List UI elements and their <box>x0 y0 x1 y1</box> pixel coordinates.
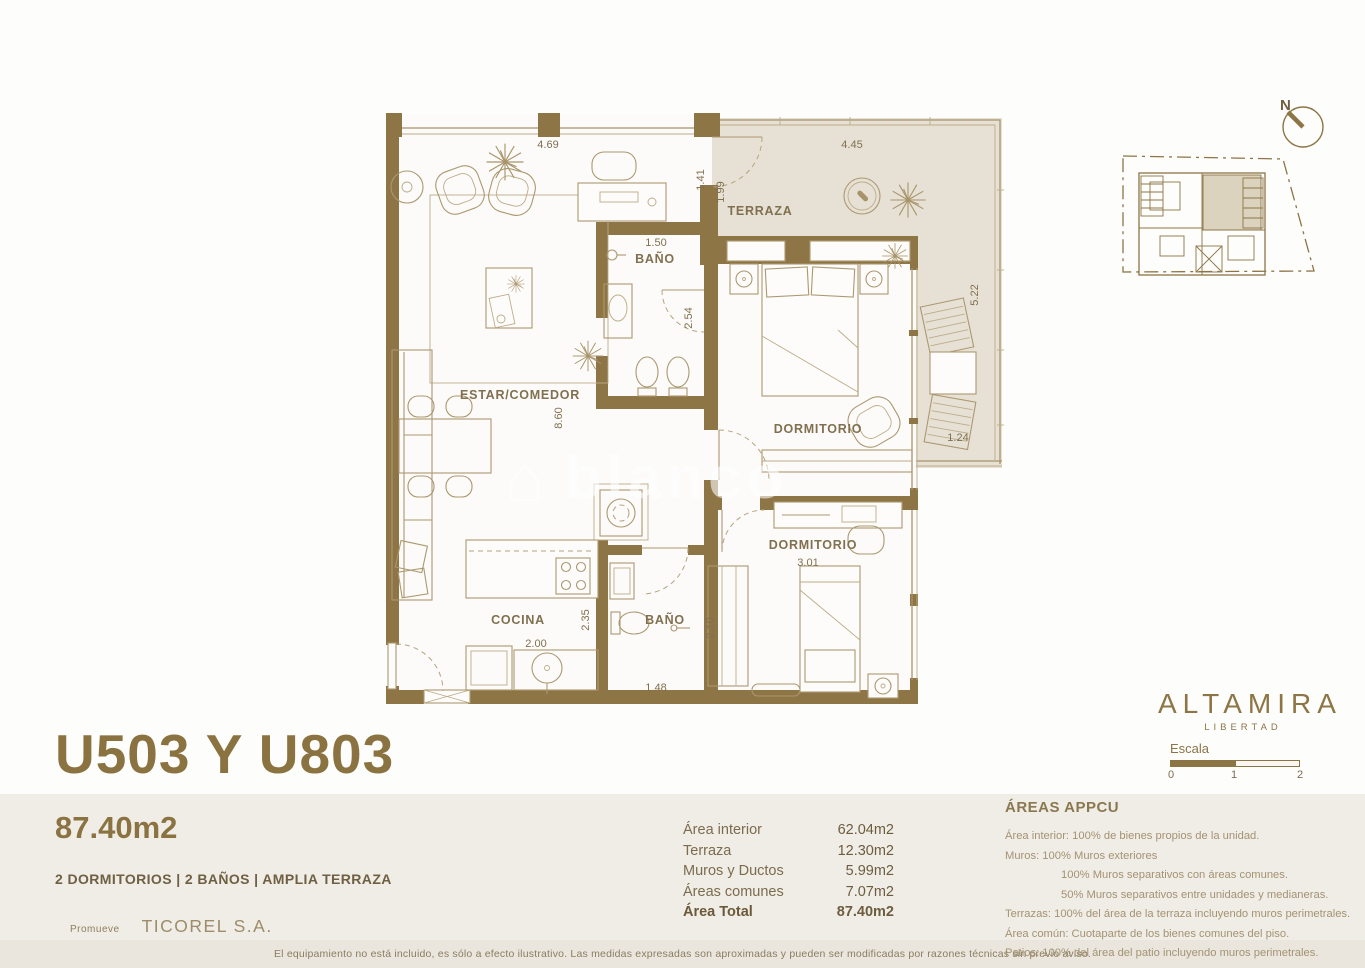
room-label-bedroom2: DORMITORIO <box>769 538 858 552</box>
scale-tick: 2 <box>1297 769 1303 781</box>
brand-tagline: LIBERTAD <box>1158 722 1302 733</box>
unit-code-title: U503 Y U803 <box>55 722 394 786</box>
dim-label: 1.48 <box>645 682 666 694</box>
dim-label: 2.54 <box>683 307 695 328</box>
appcu-title: ÁREAS APPCU <box>1005 799 1355 816</box>
terrace-side-table <box>930 352 976 394</box>
room-label-bath2: BAÑO <box>645 612 685 627</box>
row-label: Área interior <box>683 822 762 843</box>
room-label-terrace: TERRAZA <box>728 204 793 218</box>
row-value: 5.99m2 <box>846 863 894 884</box>
promoter-name: TICOREL S.A. <box>142 916 273 937</box>
dim-label: 3.01 <box>797 557 818 569</box>
scale-tick: 0 <box>1168 769 1174 781</box>
dim-label: 1.50 <box>645 237 666 249</box>
dim-label: 4.45 <box>841 139 862 151</box>
brand-name: ALTAMIRA <box>1158 688 1302 720</box>
promoter: Promueve TICOREL S.A. <box>70 916 273 937</box>
dim-label: 5.22 <box>969 284 981 305</box>
row-value: 87.40m2 <box>837 904 894 925</box>
dim-label: 4.69 <box>537 139 558 151</box>
row-label: Terraza <box>683 843 731 864</box>
site-plan <box>1123 156 1314 275</box>
scale-bar: Escala 0 1 2 <box>1170 741 1302 782</box>
compass: N <box>1280 97 1323 147</box>
scale-bar-graphic <box>1170 760 1301 767</box>
appcu-line: Terrazas: 100% del área de la terraza in… <box>1005 905 1355 925</box>
dim-label: 8.60 <box>553 407 565 428</box>
table-row: Áreas comunes 7.07m2 <box>683 884 894 905</box>
dim-label: 1.99 <box>715 181 727 202</box>
scale-label: Escala <box>1170 741 1302 756</box>
dim-label: 2.35 <box>580 609 592 630</box>
promoter-label: Promueve <box>70 924 120 935</box>
unit-total-area: 87.40m2 <box>55 810 177 846</box>
dim-label: 1.41 <box>695 169 707 190</box>
appcu-line: 50% Muros separativos entre unidades y m… <box>1005 886 1355 906</box>
floor-plan-sheet: ESTAR/COMEDOR BAÑO TERRAZA DORMITORIO DO… <box>0 0 1365 968</box>
appcu-line: 100% Muros separativos con áreas comunes… <box>1005 866 1355 886</box>
kitchen-island <box>466 540 598 598</box>
scale-segment-empty <box>1235 760 1300 767</box>
nightstand <box>730 264 758 294</box>
appcu-line: Patios: 100% del área del patio incluyen… <box>1005 944 1355 964</box>
single-bed <box>800 566 860 692</box>
row-label: Área Total <box>683 904 753 925</box>
row-value: 7.07m2 <box>846 884 894 905</box>
terrace-planter <box>727 241 785 261</box>
room-label-bedroom1: DORMITORIO <box>774 422 863 436</box>
row-value: 62.04m2 <box>838 822 894 843</box>
unit-features: 2 DORMITORIOS | 2 BAÑOS | AMPLIA TERRAZA <box>55 871 392 887</box>
row-label: Áreas comunes <box>683 884 784 905</box>
appcu-line: Área común: Cuotaparte de los bienes com… <box>1005 925 1355 945</box>
disclaimer-text: El equipamiento no está incluido, es sól… <box>274 948 1091 960</box>
highlighted-unit <box>1203 175 1261 230</box>
scale-tick: 1 <box>1231 769 1237 781</box>
table-row: Área interior 62.04m2 <box>683 822 894 843</box>
scale-ticks: 0 1 2 <box>1170 767 1302 782</box>
brand-logo: ALTAMIRA LIBERTAD <box>1158 688 1302 733</box>
room-label-bath1: BAÑO <box>635 251 675 266</box>
appcu-line: Muros: 100% Muros exteriores <box>1005 847 1355 867</box>
room-label-kitchen: COCINA <box>491 613 545 627</box>
storage-box <box>424 690 470 703</box>
appcu-line: Área interior: 100% de bienes propios de… <box>1005 827 1355 847</box>
dim-label: 2.00 <box>525 638 546 650</box>
table-row-total: Área Total 87.40m2 <box>683 904 894 925</box>
dim-label: 2.10 <box>705 617 717 638</box>
row-value: 12.30m2 <box>838 843 894 864</box>
scale-segment-filled <box>1170 760 1235 767</box>
dim-label: 1.24 <box>947 432 968 444</box>
room-label-living: ESTAR/COMEDOR <box>460 388 580 402</box>
areas-table: Área interior 62.04m2 Terraza 12.30m2 Mu… <box>683 822 894 925</box>
nightstand <box>860 264 888 294</box>
row-label: Muros y Ductos <box>683 863 784 884</box>
table-row: Terraza 12.30m2 <box>683 843 894 864</box>
appcu-notes: ÁREAS APPCU Área interior: 100% de biene… <box>1005 799 1355 964</box>
compass-north-label: N <box>1280 97 1291 114</box>
double-bed <box>762 264 858 396</box>
table-row: Muros y Ductos 5.99m2 <box>683 863 894 884</box>
